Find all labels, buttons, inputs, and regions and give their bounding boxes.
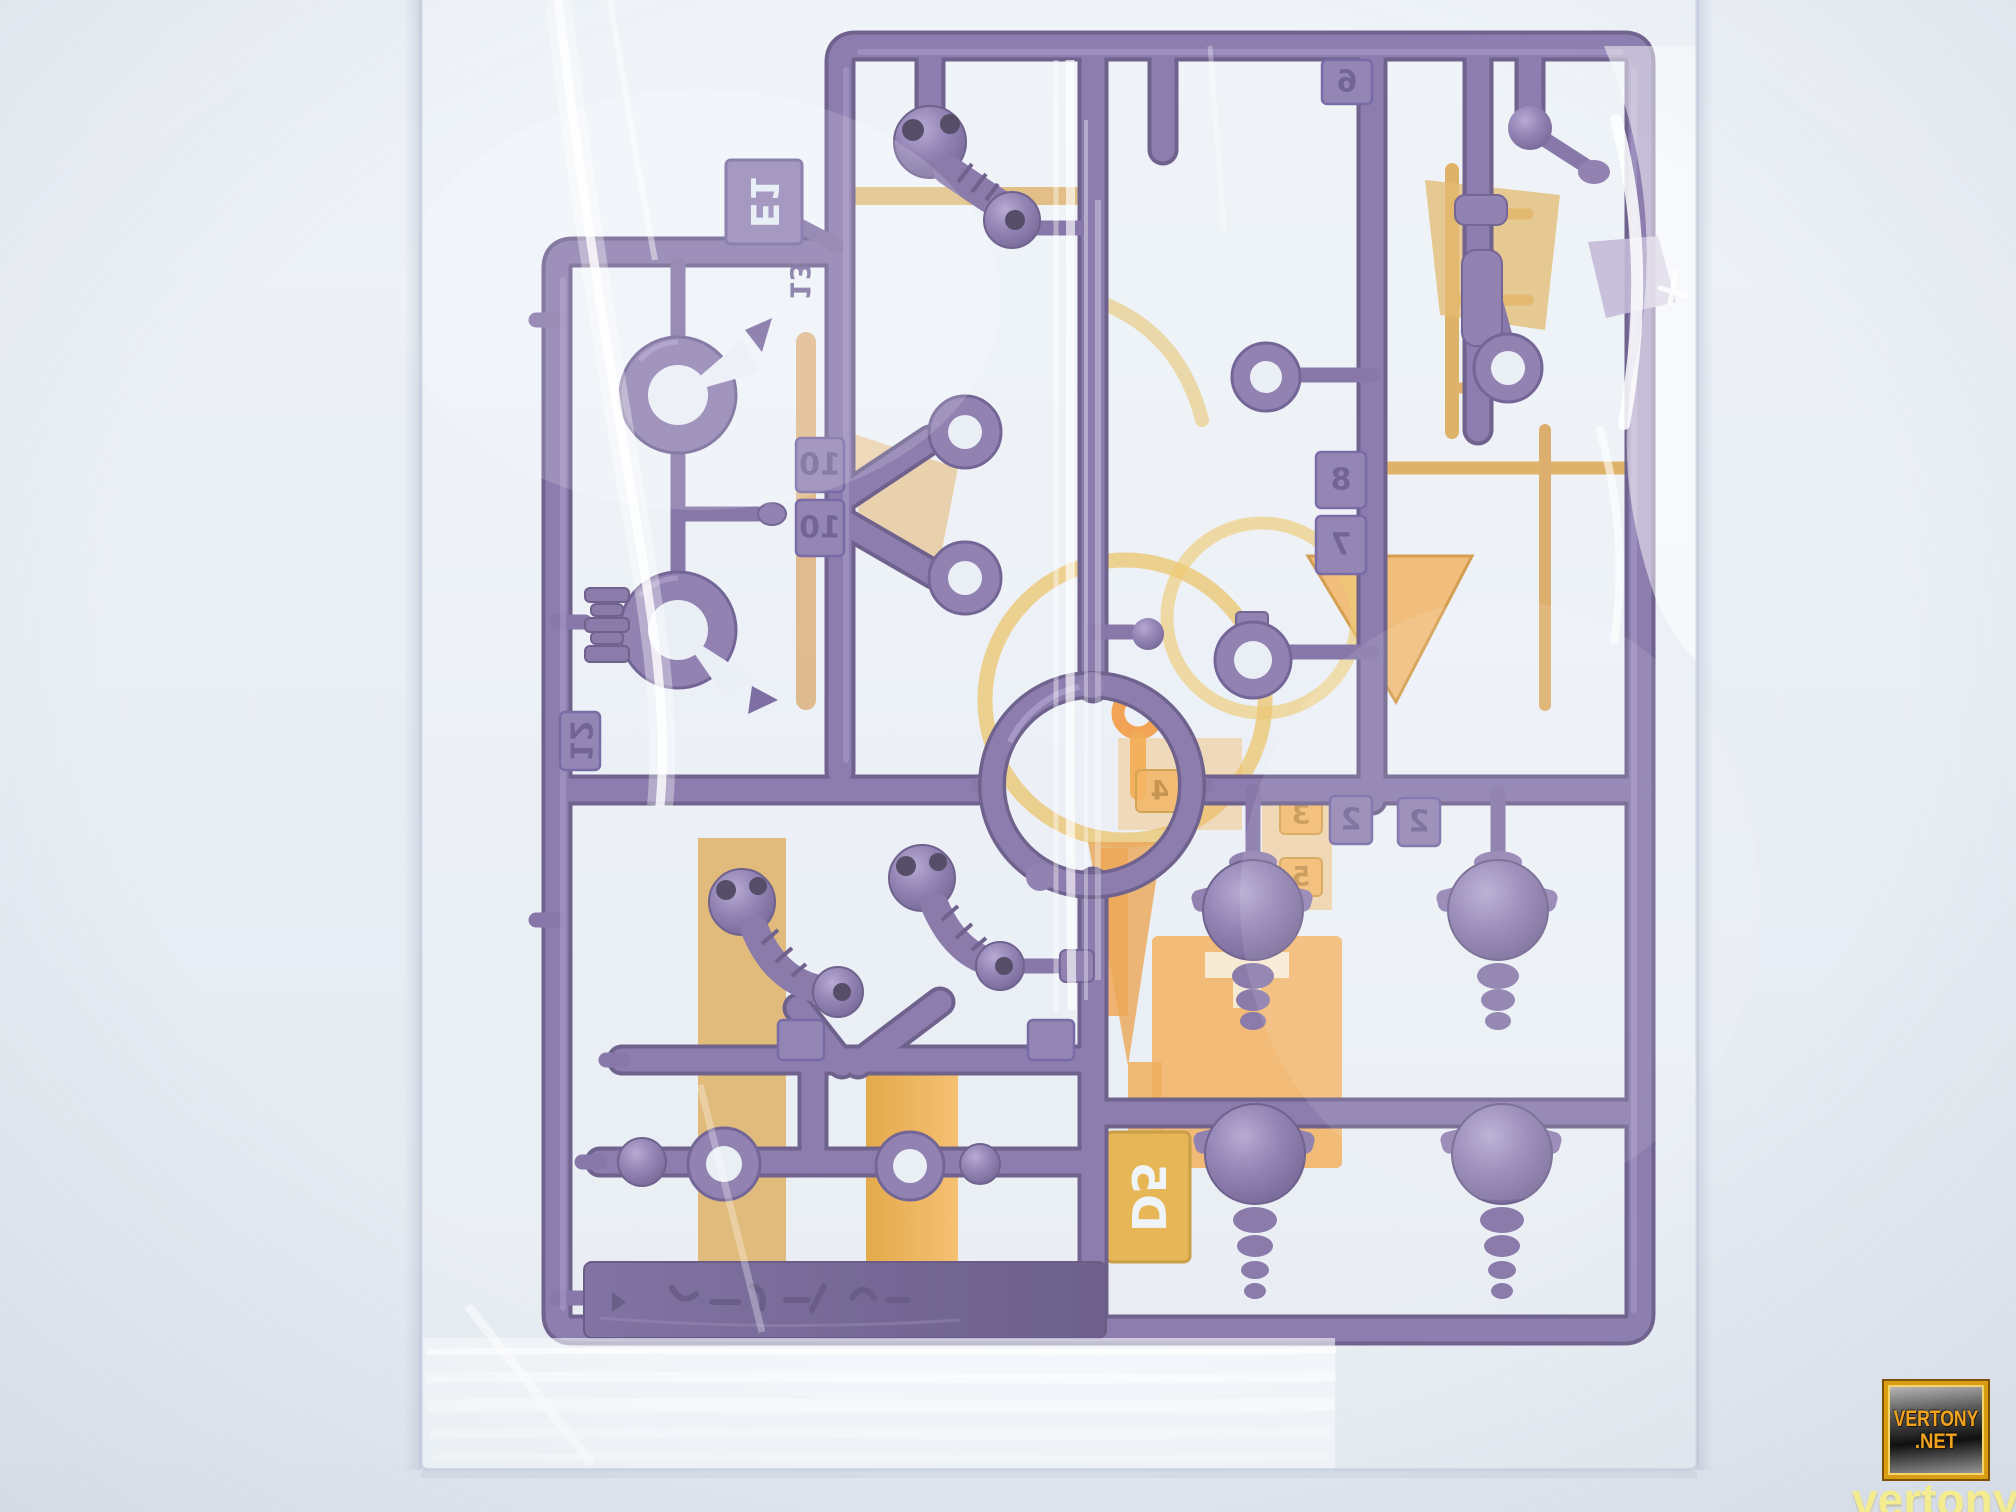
watermark-badge: VERTONY .NET (1884, 1381, 1988, 1479)
vignette-overlay (0, 0, 2016, 1512)
watermark-tagline: vertony.net (1852, 1472, 2016, 1512)
watermark-badge-line1: VERTONY (1894, 1408, 1979, 1430)
watermark-badge-line2: .NET (1915, 1431, 1957, 1452)
photo-of-model-kit-runner-in-bag: 4 3 5 D5 (0, 0, 2016, 1512)
